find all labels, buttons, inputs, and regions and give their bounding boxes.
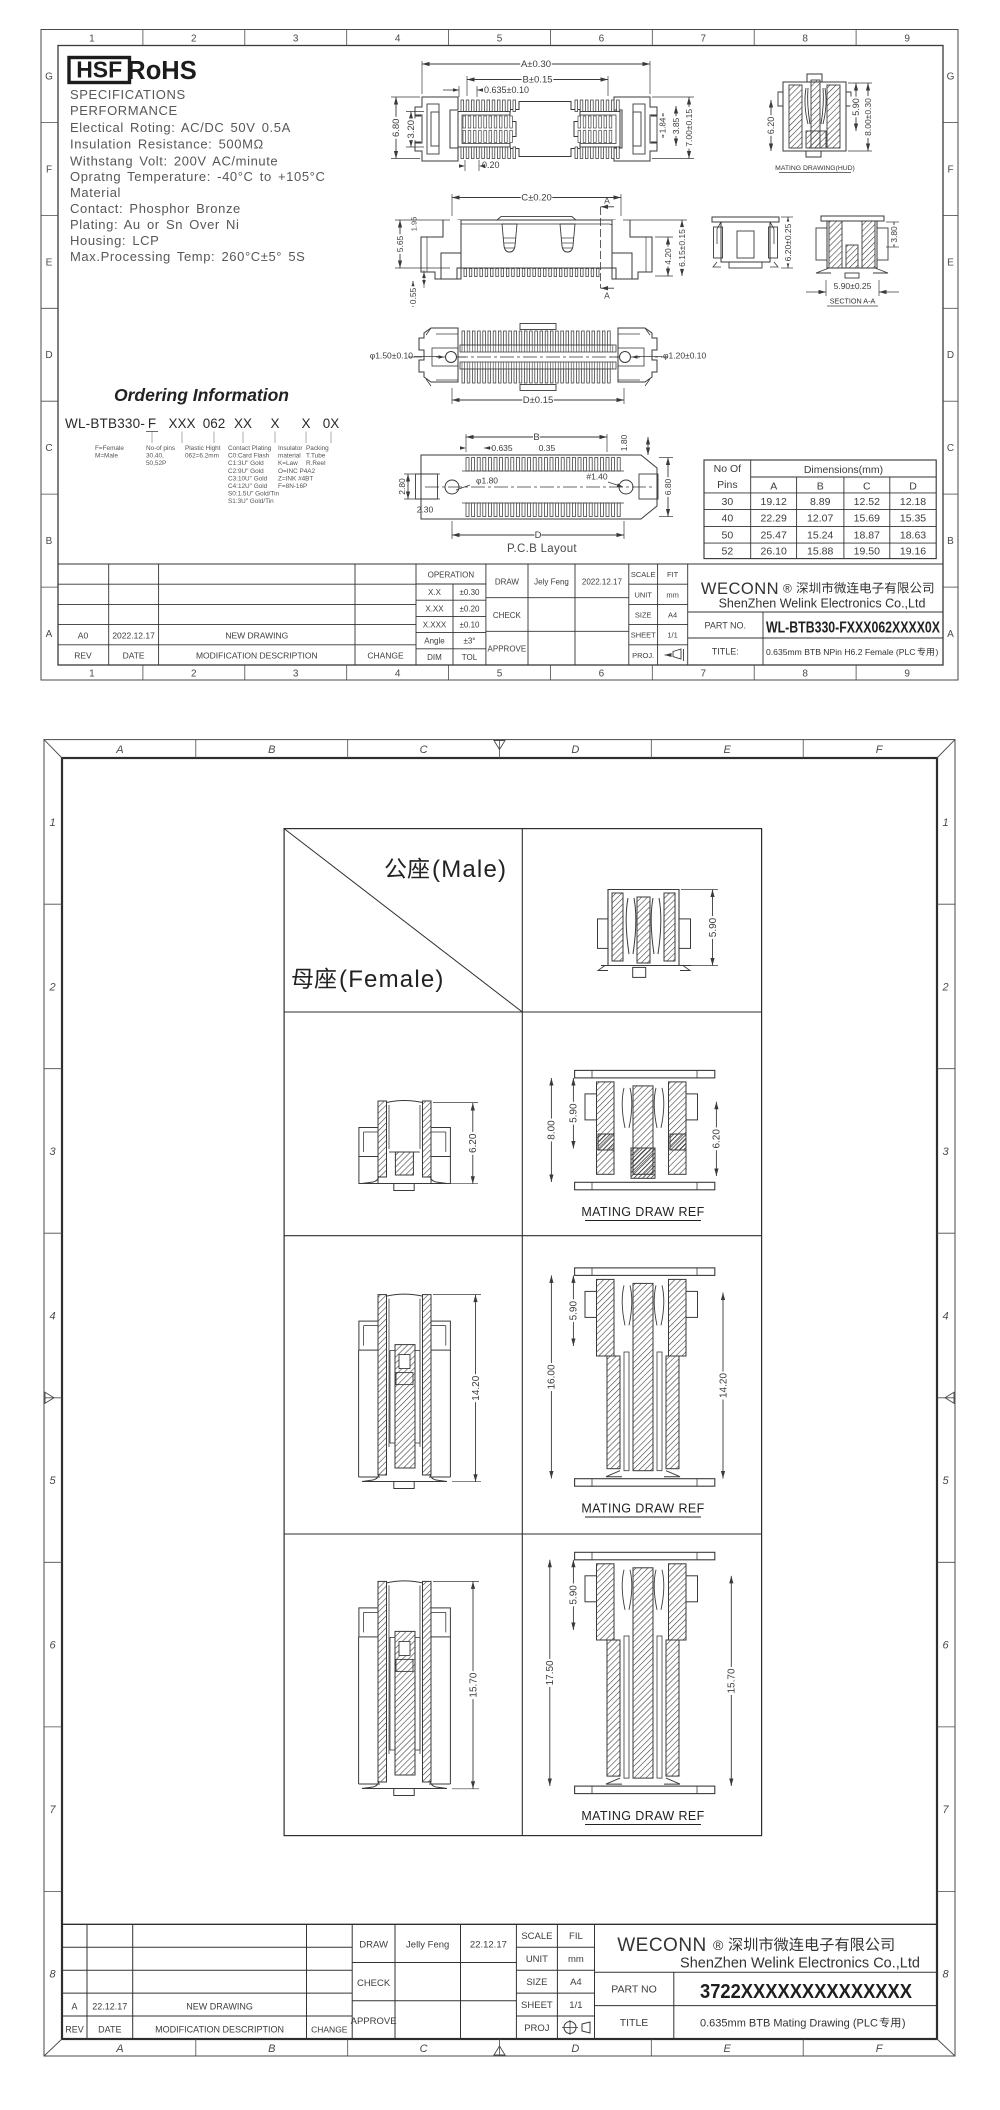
- svg-text:RoHS: RoHS: [127, 57, 196, 85]
- svg-text:PROJ.: PROJ.: [632, 651, 654, 660]
- svg-text:2: 2: [191, 669, 197, 680]
- svg-text:Contact: Phosphor Bronze: Contact: Phosphor Bronze: [70, 201, 241, 216]
- svg-text:CHECK: CHECK: [493, 611, 522, 620]
- svg-text:PART NO.: PART NO.: [705, 621, 747, 631]
- svg-text:6.80: 6.80: [663, 478, 673, 495]
- svg-text:SECTION A-A: SECTION A-A: [830, 297, 876, 306]
- svg-text:#1.40: #1.40: [586, 472, 608, 482]
- svg-text:D: D: [571, 744, 579, 756]
- svg-text:3: 3: [293, 34, 299, 45]
- svg-text:0.635±0.10: 0.635±0.10: [484, 85, 529, 95]
- svg-text:4: 4: [395, 34, 401, 45]
- svg-text:CHECK: CHECK: [357, 1978, 391, 1989]
- svg-text:C: C: [947, 443, 954, 454]
- svg-text:7.00±0.15: 7.00±0.15: [684, 109, 694, 147]
- svg-text:062=6.2mm: 062=6.2mm: [185, 453, 219, 460]
- svg-text:Withstang Volt: 200V AC/minute: Withstang Volt: 200V AC/minute: [70, 154, 278, 169]
- svg-text:15.69: 15.69: [854, 513, 880, 525]
- svg-text:±0.10: ±0.10: [460, 621, 481, 630]
- svg-text:1: 1: [49, 817, 55, 829]
- svg-text:WECONN: WECONN: [701, 580, 779, 598]
- svg-text:2.80: 2.80: [397, 478, 407, 495]
- svg-text:6.20: 6.20: [712, 1129, 723, 1149]
- svg-text:No-of pins: No-of pins: [146, 445, 175, 452]
- svg-text:C4:12U" Gold: C4:12U" Gold: [228, 483, 268, 490]
- svg-text:X.X: X.X: [428, 588, 442, 597]
- svg-text:12.18: 12.18: [900, 496, 926, 508]
- svg-text:5: 5: [497, 34, 503, 45]
- svg-text:CHANGE: CHANGE: [311, 2024, 348, 2034]
- svg-text:A: A: [770, 481, 777, 493]
- svg-text:6.80: 6.80: [391, 119, 402, 138]
- svg-text:O=INC P4A2: O=INC P4A2: [278, 468, 316, 475]
- svg-text:2: 2: [48, 981, 55, 993]
- svg-text:K=Law: K=Law: [278, 460, 298, 467]
- svg-text:TITLE:: TITLE:: [712, 647, 739, 657]
- svg-text:XX: XX: [234, 416, 252, 431]
- svg-text:2022.12.17: 2022.12.17: [112, 631, 155, 641]
- svg-text:A4: A4: [668, 611, 677, 620]
- svg-text:18.63: 18.63: [900, 529, 926, 541]
- svg-text:C: C: [863, 481, 871, 493]
- svg-text:8: 8: [942, 1969, 949, 1981]
- svg-text:26.10: 26.10: [761, 546, 787, 558]
- svg-text:3.80: 3.80: [889, 226, 899, 243]
- svg-text:6: 6: [49, 1640, 56, 1652]
- svg-text:E: E: [947, 257, 954, 268]
- svg-text:B±0.15: B±0.15: [522, 75, 552, 86]
- svg-text:±0.30: ±0.30: [460, 588, 481, 597]
- svg-text:Material: Material: [70, 185, 121, 200]
- svg-text:Ordering Information: Ordering Information: [114, 385, 289, 405]
- svg-text:MATING DRAW REF: MATING DRAW REF: [581, 1205, 704, 1219]
- svg-text:Opratng Temperature: -40°C to: Opratng Temperature: -40°C to +105°C: [70, 169, 325, 184]
- svg-text:52: 52: [722, 546, 734, 558]
- svg-text:C2:9U" Gold: C2:9U" Gold: [228, 468, 264, 475]
- svg-text:C: C: [45, 443, 52, 454]
- svg-text:15.24: 15.24: [807, 529, 833, 541]
- svg-text:A: A: [947, 629, 954, 640]
- svg-text:E: E: [724, 2043, 732, 2055]
- svg-text:0.35: 0.35: [539, 443, 556, 453]
- svg-text:PROJ: PROJ: [524, 2023, 550, 2034]
- svg-text:MODIFICATION DESCRIPTION: MODIFICATION DESCRIPTION: [155, 2024, 284, 2034]
- svg-text:SHEET: SHEET: [521, 2000, 553, 2011]
- svg-text:14.20: 14.20: [471, 1375, 482, 1400]
- svg-text:A: A: [71, 2002, 77, 2012]
- svg-text:Plating: Au or Sn Over Ni: Plating: Au or Sn Over Ni: [70, 217, 240, 232]
- svg-text:B: B: [46, 536, 53, 547]
- svg-text:12.07: 12.07: [807, 513, 833, 525]
- svg-text:Dimensions(mm): Dimensions(mm): [804, 464, 883, 476]
- svg-text:(Male): (Male): [432, 856, 507, 883]
- svg-text:E: E: [46, 257, 53, 268]
- svg-text:15.70: 15.70: [727, 1668, 738, 1693]
- svg-text:5.90: 5.90: [569, 1585, 580, 1605]
- svg-text:REV: REV: [74, 651, 92, 661]
- svg-text:7: 7: [701, 669, 707, 680]
- svg-text:XXX: XXX: [168, 416, 195, 431]
- svg-text:MATING DRAW REF: MATING DRAW REF: [581, 1502, 704, 1516]
- svg-text:6: 6: [942, 1640, 949, 1652]
- svg-text:1: 1: [942, 817, 948, 829]
- svg-text:APPROVE: APPROVE: [488, 645, 527, 654]
- svg-text:30,40,: 30,40,: [146, 453, 164, 460]
- svg-text:0.635mm BTB Mating Drawing (PL: 0.635mm BTB Mating Drawing (PLC: [700, 2018, 878, 2030]
- svg-text:8.00±0.30: 8.00±0.30: [863, 98, 873, 136]
- svg-text:2022.12.17: 2022.12.17: [582, 577, 623, 586]
- svg-text:C3:10U" Gold: C3:10U" Gold: [228, 475, 268, 482]
- svg-text:NEW DRAWING: NEW DRAWING: [186, 2002, 253, 2012]
- svg-text:T.Tube: T.Tube: [306, 453, 326, 460]
- svg-text:MATING DRAWING(HUD): MATING DRAWING(HUD): [775, 165, 855, 172]
- svg-text:φ1.50±0.10: φ1.50±0.10: [370, 351, 414, 361]
- svg-text:F: F: [947, 164, 953, 175]
- svg-text:3: 3: [293, 669, 299, 680]
- svg-text:9: 9: [904, 669, 910, 680]
- svg-text:5.65: 5.65: [395, 235, 405, 252]
- svg-text:REV: REV: [65, 2024, 84, 2034]
- svg-text:D: D: [947, 350, 954, 361]
- svg-text:6.20±0.25: 6.20±0.25: [783, 223, 793, 261]
- svg-text:0.635: 0.635: [491, 443, 513, 453]
- svg-text:E: E: [724, 744, 732, 756]
- svg-text:P.C.B Layout: P.C.B Layout: [507, 543, 577, 555]
- svg-text:φ1.20±0.10: φ1.20±0.10: [663, 351, 707, 361]
- svg-text:3722XXXXXXXXXXXXXX: 3722XXXXXXXXXXXXXX: [700, 1981, 913, 2003]
- svg-text:22.12.17: 22.12.17: [92, 2002, 127, 2012]
- svg-text:6: 6: [599, 669, 605, 680]
- svg-text:2: 2: [191, 34, 197, 45]
- svg-text:MODIFICATION DESCRIPTION: MODIFICATION DESCRIPTION: [196, 651, 318, 661]
- svg-text:30: 30: [722, 496, 734, 508]
- svg-text:3.85: 3.85: [671, 117, 681, 134]
- svg-text:4.20: 4.20: [663, 248, 673, 265]
- svg-text:19.12: 19.12: [761, 496, 787, 508]
- svg-text:): ): [936, 647, 939, 657]
- svg-text:3.20: 3.20: [406, 120, 417, 139]
- svg-text:C: C: [420, 744, 428, 756]
- svg-text:B: B: [268, 2043, 275, 2055]
- svg-text:9: 9: [904, 34, 910, 45]
- svg-text:7: 7: [701, 34, 707, 45]
- svg-text:ShenZhen Welink Electronics Co: ShenZhen Welink Electronics Co.,Ltd: [680, 1956, 920, 1972]
- svg-text:SHEET: SHEET: [631, 631, 656, 640]
- svg-text:F=Female: F=Female: [95, 445, 124, 452]
- svg-text:40: 40: [722, 513, 734, 525]
- svg-text:DATE: DATE: [123, 651, 145, 661]
- svg-text:19.50: 19.50: [854, 546, 880, 558]
- svg-text:C±0.20: C±0.20: [521, 193, 552, 204]
- svg-text:1: 1: [89, 669, 95, 680]
- svg-text:22.12.17: 22.12.17: [470, 1940, 507, 1951]
- svg-text:Insulation Resistance: 500M: Insulation Resistance: 500MΩ: [70, 137, 264, 152]
- svg-text:14.20: 14.20: [718, 1373, 729, 1398]
- svg-text:7: 7: [942, 1804, 949, 1816]
- svg-text:1/1: 1/1: [667, 631, 677, 640]
- svg-text:17.50: 17.50: [545, 1660, 556, 1685]
- svg-text:(Female): (Female): [339, 966, 445, 993]
- svg-text:R.Reel: R.Reel: [306, 460, 326, 467]
- svg-text:WL-BTB330-FXXX062XXXX0X: WL-BTB330-FXXX062XXXX0X: [766, 620, 940, 637]
- svg-text:G: G: [45, 72, 53, 83]
- svg-text:CHANGE: CHANGE: [367, 651, 404, 661]
- svg-text:D: D: [571, 2043, 579, 2055]
- svg-text:18.87: 18.87: [854, 529, 880, 541]
- svg-text:3: 3: [942, 1146, 949, 1158]
- svg-text:No Of: No Of: [714, 463, 742, 475]
- svg-text:Plastic Hight: Plastic Hight: [185, 445, 221, 452]
- svg-text:TOL: TOL: [462, 653, 478, 662]
- svg-text:062: 062: [203, 416, 226, 431]
- svg-text:5.90: 5.90: [569, 1103, 580, 1123]
- svg-text:A0: A0: [78, 631, 89, 641]
- svg-text:OPERATION: OPERATION: [428, 571, 475, 580]
- svg-text:UNIT: UNIT: [526, 1954, 548, 1965]
- svg-text:6: 6: [599, 34, 605, 45]
- svg-text:6.15±0.15: 6.15±0.15: [677, 229, 687, 267]
- svg-text:PART NO: PART NO: [611, 1984, 657, 1996]
- svg-text:ShenZhen Welink Electronics Co: ShenZhen Welink Electronics Co.,Ltd: [719, 597, 926, 611]
- svg-text:S0:1.5U" Gold/Tin: S0:1.5U" Gold/Tin: [228, 491, 279, 498]
- svg-text:A: A: [115, 2043, 123, 2055]
- svg-text:φ1.80: φ1.80: [476, 476, 498, 486]
- svg-text:Angle: Angle: [424, 637, 445, 646]
- svg-text:DIM: DIM: [427, 653, 442, 662]
- svg-text:8.00: 8.00: [547, 1120, 558, 1140]
- svg-text:1.84: 1.84: [659, 117, 668, 133]
- svg-text:DRAW: DRAW: [359, 1940, 388, 1951]
- svg-text:): ): [902, 2018, 906, 2030]
- svg-text:F=8N-16P: F=8N-16P: [278, 483, 307, 490]
- svg-text:4: 4: [942, 1311, 948, 1323]
- svg-text:8: 8: [802, 669, 808, 680]
- svg-text:F: F: [46, 164, 52, 175]
- svg-text:C1:3U" Gold: C1:3U" Gold: [228, 460, 264, 467]
- svg-text:X: X: [301, 416, 310, 431]
- svg-text:D: D: [909, 481, 917, 493]
- svg-text:4: 4: [395, 669, 401, 680]
- svg-text:3: 3: [49, 1146, 56, 1158]
- svg-text:B: B: [947, 536, 954, 547]
- svg-text:12.52: 12.52: [854, 496, 880, 508]
- svg-text:X.XX: X.XX: [425, 604, 444, 613]
- svg-text:PERFORMANCE: PERFORMANCE: [70, 103, 178, 118]
- svg-text:G: G: [947, 72, 955, 83]
- svg-text:0.55: 0.55: [408, 287, 418, 304]
- svg-text:SPECIFICATIONS: SPECIFICATIONS: [70, 87, 186, 102]
- svg-text:5.90: 5.90: [708, 917, 719, 937]
- svg-text:1.80: 1.80: [619, 434, 629, 451]
- svg-text:7: 7: [49, 1804, 56, 1816]
- svg-text:Jelly Feng: Jelly Feng: [406, 1940, 449, 1951]
- svg-text:19.16: 19.16: [900, 546, 926, 558]
- svg-text:5: 5: [497, 669, 503, 680]
- svg-text:15.88: 15.88: [807, 546, 833, 558]
- svg-text:NEW DRAWING: NEW DRAWING: [225, 631, 288, 641]
- svg-text:S1:3U" Gold/Tin: S1:3U" Gold/Tin: [228, 498, 274, 505]
- svg-text:Jely Feng: Jely Feng: [534, 577, 569, 586]
- svg-text:Contact Plating: Contact Plating: [228, 445, 272, 452]
- svg-text:25.47: 25.47: [761, 529, 787, 541]
- svg-text:Z=INK #4BT: Z=INK #4BT: [278, 475, 313, 482]
- svg-text:mm: mm: [568, 1954, 584, 1965]
- svg-text:8: 8: [49, 1969, 56, 1981]
- svg-text:Electical Roting: AC/DC 50V 0.: Electical Roting: AC/DC 50V 0.5A: [70, 120, 291, 135]
- svg-text:Max.Processing Temp: 260°C±5°: Max.Processing Temp: 260°C±5° 5S: [70, 249, 305, 264]
- svg-text:4: 4: [49, 1311, 55, 1323]
- svg-text:15.35: 15.35: [900, 513, 926, 525]
- svg-text:FIL: FIL: [569, 1931, 583, 1942]
- svg-text:50: 50: [722, 529, 734, 541]
- svg-text:D: D: [45, 350, 52, 361]
- svg-text:HSF: HSF: [76, 57, 122, 83]
- svg-text:2.30: 2.30: [417, 505, 434, 515]
- svg-text:material: material: [278, 453, 301, 460]
- svg-text:A: A: [115, 744, 123, 756]
- svg-text:22.29: 22.29: [761, 513, 787, 525]
- svg-text:B: B: [817, 481, 824, 493]
- svg-text:®: ®: [713, 1937, 724, 1953]
- svg-text:6.20: 6.20: [468, 1133, 479, 1153]
- svg-text:5: 5: [942, 1475, 949, 1487]
- svg-text:15.70: 15.70: [468, 1672, 479, 1697]
- svg-text:SIZE: SIZE: [635, 611, 652, 620]
- svg-text:A: A: [604, 291, 610, 301]
- svg-text:C: C: [420, 2043, 428, 2055]
- svg-text:MATING DRAW REF: MATING DRAW REF: [581, 1809, 704, 1823]
- svg-text:Pins: Pins: [717, 479, 737, 491]
- svg-text:5.90±0.25: 5.90±0.25: [834, 281, 872, 291]
- svg-text:A4: A4: [570, 1977, 582, 1988]
- svg-text:A: A: [604, 196, 610, 206]
- svg-text:A±0.30: A±0.30: [521, 59, 551, 70]
- svg-text:8.89: 8.89: [810, 496, 831, 508]
- svg-text:1.95: 1.95: [410, 217, 419, 232]
- svg-text:50,52P: 50,52P: [146, 460, 166, 467]
- svg-text:SCALE: SCALE: [521, 1931, 552, 1942]
- svg-text:B: B: [533, 432, 539, 443]
- svg-text:Insulator: Insulator: [278, 445, 303, 452]
- svg-text:mm: mm: [666, 590, 679, 599]
- svg-text:5: 5: [49, 1475, 56, 1487]
- svg-text:SCALE: SCALE: [631, 570, 656, 579]
- svg-text:A: A: [46, 629, 53, 640]
- svg-text:TITLE: TITLE: [620, 2017, 649, 2029]
- svg-text:X.XXX: X.XXX: [423, 621, 447, 630]
- svg-text:C0:Card Flash: C0:Card Flash: [228, 453, 270, 460]
- svg-text:®: ®: [783, 582, 792, 596]
- svg-text:5.90: 5.90: [569, 1301, 580, 1321]
- svg-text:6.20: 6.20: [766, 117, 776, 135]
- svg-text:F: F: [148, 416, 156, 431]
- svg-text:0X: 0X: [323, 416, 340, 431]
- svg-text:0.20: 0.20: [482, 160, 500, 170]
- svg-text:Housing: LCP: Housing: LCP: [70, 233, 159, 248]
- svg-text:0.635mm BTB NPin H6.2 Female (: 0.635mm BTB NPin H6.2 Female (PLC: [766, 647, 916, 657]
- svg-text:FIT: FIT: [667, 570, 679, 579]
- svg-text:Packing: Packing: [306, 445, 329, 452]
- svg-text:DRAW: DRAW: [495, 577, 520, 586]
- svg-text:8: 8: [802, 34, 808, 45]
- svg-text:D±0.15: D±0.15: [523, 395, 554, 406]
- svg-text:5.90: 5.90: [851, 98, 861, 116]
- svg-text:APPROVE: APPROVE: [351, 2016, 397, 2027]
- svg-text:UNIT: UNIT: [634, 590, 652, 599]
- svg-text:WL-BTB330-: WL-BTB330-: [65, 416, 145, 431]
- svg-text:D: D: [535, 530, 542, 541]
- svg-text:1: 1: [89, 34, 95, 45]
- svg-text:±0.20: ±0.20: [460, 604, 481, 613]
- svg-text:1/1: 1/1: [569, 2000, 582, 2011]
- svg-text:2: 2: [941, 981, 948, 993]
- svg-text:WECONN: WECONN: [617, 1935, 707, 1956]
- svg-text:±3°: ±3°: [463, 637, 475, 646]
- svg-text:DATE: DATE: [98, 2024, 121, 2034]
- svg-text:SIZE: SIZE: [526, 1977, 547, 1988]
- svg-text:16.00: 16.00: [547, 1364, 558, 1389]
- svg-text:M=Male: M=Male: [95, 453, 118, 460]
- svg-text:B: B: [268, 744, 275, 756]
- svg-text:X: X: [270, 416, 279, 431]
